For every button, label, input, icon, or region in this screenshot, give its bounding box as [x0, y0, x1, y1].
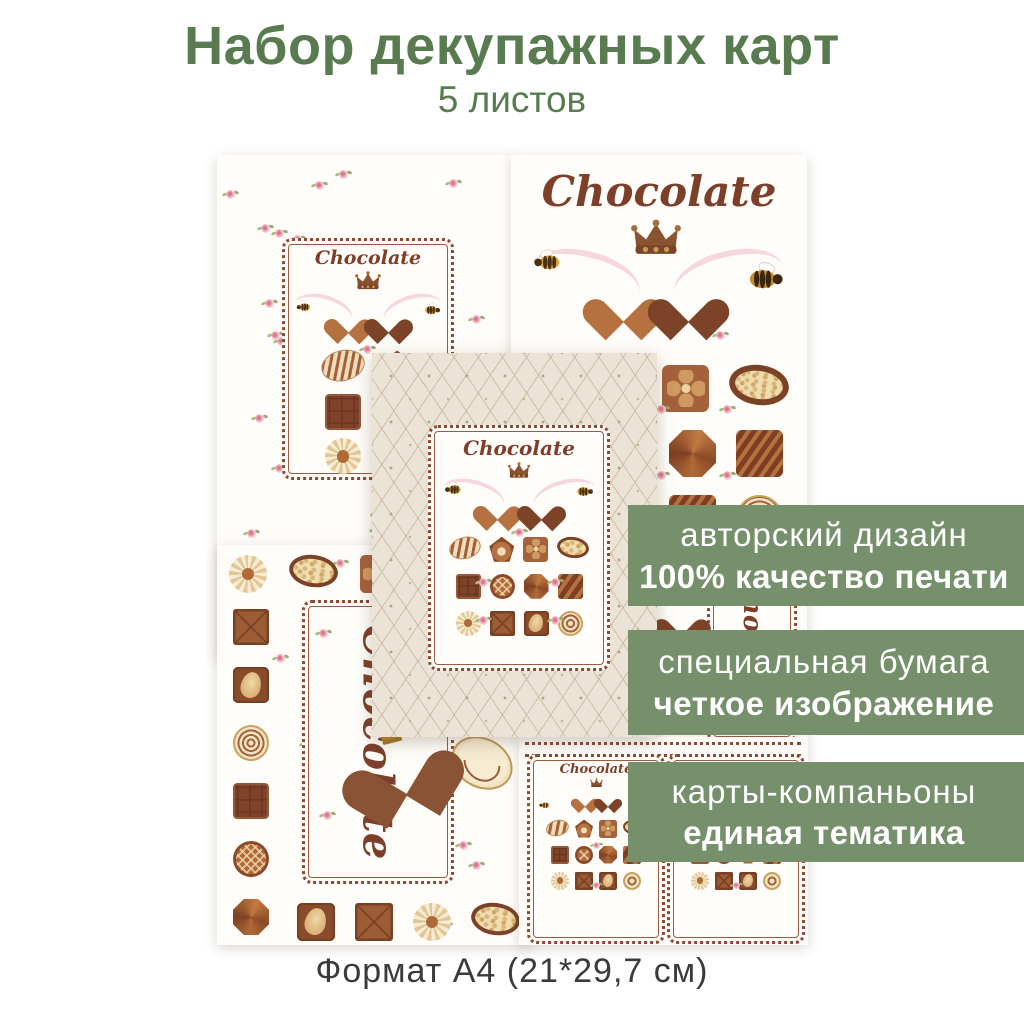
feature-banner-paper: специальная бумага четкое изображение: [628, 630, 1024, 735]
rose-motif: [261, 224, 270, 233]
heart-chocolate: [576, 793, 593, 808]
heart-chocolate: [482, 496, 512, 523]
chocolate-flower-square: [523, 537, 548, 562]
banner-line: специальная бумага: [628, 641, 1020, 682]
banner-line: 100% качество печати: [628, 556, 1020, 597]
chocolate-grid: [449, 525, 590, 636]
heart-chocolate: [663, 282, 713, 327]
chocolate-choc-square: [233, 783, 269, 819]
rose-motif: [472, 315, 481, 324]
rose-motif: [319, 629, 328, 638]
chocolate-nut-oval: [287, 552, 340, 591]
chocolate-oval-striped: [447, 533, 483, 562]
chocolate-meringue: [413, 903, 451, 941]
rose-motif: [716, 331, 725, 340]
rose-motif: [723, 405, 732, 414]
rose-motif: [255, 414, 264, 423]
banner-line: единая тематика: [628, 812, 1020, 853]
rose-motif: [723, 471, 732, 480]
rose-motif: [323, 811, 332, 820]
chocolate-nut-oval: [469, 900, 522, 939]
feature-banner-theme: карты-компаньоны единая тематика: [628, 762, 1024, 862]
chocolate-row: [297, 903, 520, 941]
chocolate-row: [659, 430, 793, 477]
chocolate-almond-square: [739, 872, 757, 890]
chocolate-choc-square: [551, 846, 569, 864]
rose-motif: [733, 882, 740, 889]
chocolate-gem: [599, 846, 617, 864]
chocolate-bar: [233, 609, 269, 645]
chocolate-gem: [524, 574, 549, 599]
rose-motif: [226, 190, 235, 199]
rose-motif: [515, 528, 524, 537]
heart-chocolates: [333, 309, 403, 336]
chocolate-row: [449, 537, 590, 562]
page-title: Набор декупажных карт: [0, 18, 1024, 75]
chocolate-card: Chocolate: [428, 425, 610, 671]
bee-icon: [531, 247, 563, 272]
chocolate-swirl-round: [558, 611, 583, 636]
chocolate-pentagon: [575, 820, 593, 838]
chocolate-flower-square: [599, 820, 617, 838]
chocolate-swirl-square: [558, 574, 583, 599]
chocolate-waffle: [490, 574, 515, 599]
rose-motif: [551, 578, 560, 587]
bee-icon: [745, 259, 787, 291]
chocolate-meringue: [229, 555, 267, 593]
rose-motif: [479, 616, 488, 625]
feature-banner-design: авторский дизайн 100% качество печати: [628, 505, 1024, 606]
rose-motif: [479, 578, 488, 587]
heart-chocolate: [598, 282, 648, 327]
chocolate-swirl-round: [233, 725, 269, 761]
rose-motif: [247, 529, 256, 538]
heart-chocolate: [333, 309, 363, 336]
chocolate-meringue: [551, 872, 569, 890]
crown-icon: [506, 462, 532, 480]
chocolate-script-title: Chocolate: [511, 167, 807, 216]
chocolate-oval-striped: [544, 817, 571, 839]
rose-motif: [472, 861, 481, 870]
rose-motif: [276, 654, 285, 663]
rose-motif: [449, 179, 458, 188]
chocolate-bar: [490, 611, 515, 636]
heart-chocolate: [373, 309, 403, 336]
rose-motif: [363, 345, 372, 354]
chocolate-script-title: Chocolate: [315, 247, 421, 269]
heart-chocolates: [482, 496, 556, 523]
heart-chocolate: [526, 496, 556, 523]
rose-motif: [657, 471, 666, 480]
rose-motif: [593, 842, 600, 849]
crown-icon: [627, 219, 685, 259]
banner-line: карты-компаньоны: [628, 771, 1020, 812]
chocolate-choc-square: [325, 394, 361, 430]
page-subtitle: 5 листов: [0, 79, 1024, 121]
rose-motif: [271, 331, 280, 340]
chocolate-row: [449, 611, 590, 636]
chocolate-meringue: [691, 872, 709, 890]
product-showcase: Набор декупажных карт 5 листов Chocolate…: [0, 0, 1024, 1021]
chocolate-almond-square: [599, 872, 617, 890]
rose-motif: [657, 405, 666, 414]
bee-icon: [443, 480, 463, 495]
chocolate-meringue: [456, 611, 481, 636]
chocolate-script-title: Chocolate: [463, 436, 575, 460]
sheet-quilt-center: Chocolate: [372, 353, 657, 737]
banner-line: четкое изображение: [628, 683, 1020, 724]
chocolate-bar: [355, 903, 393, 941]
chocolate-gem: [233, 899, 269, 935]
heart-chocolates: [576, 793, 616, 808]
chocolate-nut-oval: [556, 535, 591, 560]
chocolate-nut-oval: [727, 361, 792, 409]
chocolate-swirl-round: [763, 872, 781, 890]
chocolate-swirl-round: [623, 872, 641, 890]
banner-line: авторский дизайн: [628, 514, 1020, 555]
rose-motif: [593, 882, 600, 889]
bee-icon: [538, 799, 551, 809]
chocolate-almond-square: [524, 611, 549, 636]
rose-motif: [459, 841, 468, 850]
chocolate-waffle: [233, 841, 269, 877]
chocolate-almond-square: [297, 903, 335, 941]
chocolate-flower-square: [662, 365, 709, 412]
format-caption: Формат А4 (21*29,7 см): [0, 952, 1024, 991]
bee-icon: [423, 301, 442, 316]
rose-motif: [315, 181, 324, 190]
chocolate-swirl-square: [736, 430, 783, 477]
chocolate-oval-striped: [318, 346, 369, 387]
chocolate-pentagon: [489, 537, 514, 562]
chocolate-waffle: [575, 846, 593, 864]
header: Набор декупажных карт 5 листов: [0, 18, 1024, 121]
chocolate-column: [233, 609, 269, 935]
crown-icon: [353, 271, 383, 291]
chocolate-choc-square: [456, 574, 481, 599]
chocolate-script-title: Chocolate: [560, 762, 633, 777]
chocolate-gem: [669, 430, 716, 477]
rose-motif: [275, 229, 284, 238]
rose-motif: [339, 170, 348, 179]
chocolate-almond-square: [233, 667, 269, 703]
heart-chocolates: [598, 282, 713, 327]
chocolate-meringue: [325, 438, 361, 474]
rose-motif: [265, 299, 274, 308]
bee-icon: [295, 299, 312, 312]
rose-motif: [551, 616, 560, 625]
bee-icon: [575, 482, 595, 497]
heart-chocolate: [599, 793, 616, 808]
chocolate-row: [449, 574, 590, 599]
crown-icon: [589, 778, 604, 788]
